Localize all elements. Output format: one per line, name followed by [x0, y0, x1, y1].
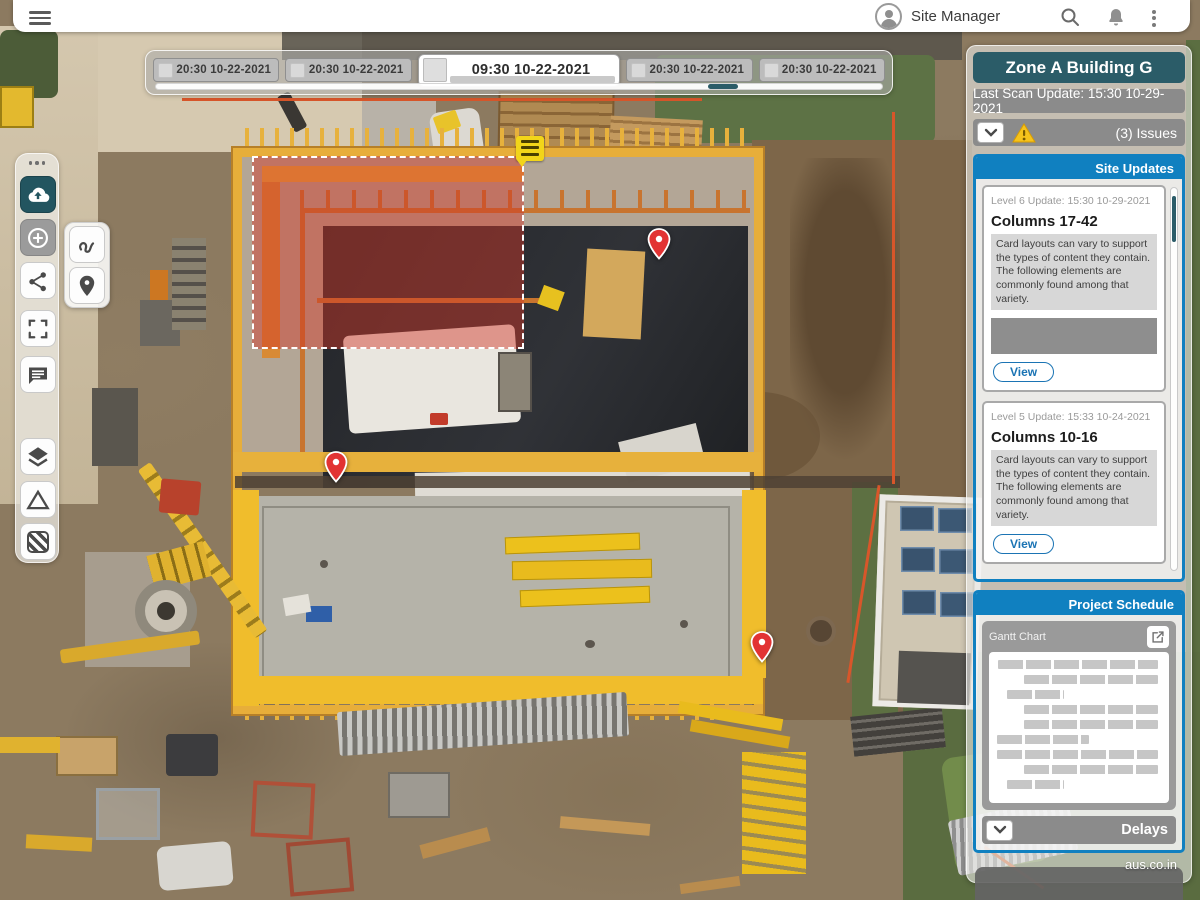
gantt-bar	[1024, 705, 1158, 714]
delays-label: Delays	[1013, 822, 1168, 838]
photo-red-scaffold-2	[286, 837, 354, 896]
gantt-bar	[1024, 675, 1158, 684]
upload-cloud-button[interactable]	[20, 176, 56, 213]
layers-icon	[25, 444, 51, 470]
snapshot-thumbnail	[764, 63, 779, 78]
update-meta: Level 5 Update: 15:33 10-24-2021	[991, 411, 1157, 423]
update-image-placeholder	[991, 318, 1157, 354]
menu-icon[interactable]	[29, 8, 51, 24]
update-title: Columns 10-16	[991, 429, 1157, 446]
triangle-icon	[25, 487, 51, 513]
location-pin-icon	[76, 275, 98, 297]
gantt-bar	[1024, 765, 1158, 774]
user-menu[interactable]: Site Manager	[875, 2, 1000, 30]
photo-beams-v	[742, 752, 806, 874]
photo-dark-bin	[166, 734, 218, 776]
gantt-bar	[998, 660, 1158, 669]
photo-debris-3	[680, 620, 688, 628]
photo-pallet-tan	[56, 736, 118, 776]
photo-red-scaffold-1	[251, 780, 316, 839]
more-options-icon[interactable]	[1150, 7, 1158, 27]
photo-red-machine	[159, 478, 202, 515]
share-button[interactable]	[20, 262, 56, 299]
plus-circle-icon	[25, 225, 51, 251]
update-body-text: Card layouts can vary to support the typ…	[991, 450, 1157, 526]
freehand-draw-icon	[75, 233, 99, 257]
fullscreen-button[interactable]	[20, 310, 56, 347]
site-updates-body: Level 6 Update: 15:30 10-29-2021 Columns…	[976, 179, 1182, 579]
photo-crane-hub	[157, 602, 175, 620]
gantt-bar	[997, 735, 1089, 744]
photo-divider-yellow	[233, 452, 761, 472]
site-updates-panel: Site Updates Level 6 Update: 15:30 10-29…	[973, 154, 1185, 582]
photo-debris-1	[320, 560, 328, 568]
photo-solar-panel-3	[901, 547, 935, 572]
map-pin[interactable]	[324, 451, 348, 483]
timeline-snapshot-button[interactable]: 20:30 10-22-2021	[153, 58, 279, 82]
updates-scrollbar[interactable]	[1170, 187, 1178, 571]
issues-expand-button[interactable]	[977, 122, 1004, 143]
detail-placeholder-box	[975, 867, 1183, 900]
timeline-snapshot-button[interactable]: 20:30 10-22-2021	[285, 58, 411, 82]
photo-red-machine-dot	[430, 413, 448, 425]
gantt-bar	[997, 750, 1158, 759]
timeline-snapshot-button[interactable]: 20:30 10-22-2021	[759, 58, 885, 82]
update-body-text: Card layouts can vary to support the typ…	[991, 234, 1157, 310]
photo-boundary-line-top	[182, 98, 702, 101]
upload-cloud-icon	[25, 182, 51, 208]
photo-stack-striped	[172, 238, 206, 330]
photo-dark-stack-1	[92, 388, 138, 466]
note-marker-icon[interactable]	[516, 136, 544, 161]
last-scan-update: Last Scan Update: 15:30 10-29-2021	[973, 89, 1185, 113]
gantt-bar	[1024, 720, 1158, 729]
view-button[interactable]: View	[993, 362, 1054, 382]
search-icon[interactable]	[1060, 7, 1080, 27]
snapshot-thumbnail	[290, 63, 305, 78]
gantt-chart-label: Gantt Chart	[989, 631, 1046, 643]
app-root: Site Manager 20:30 10-22-2021 20:30 10-2…	[0, 0, 1200, 900]
layers-button[interactable]	[20, 438, 56, 475]
photo-manhole	[806, 616, 836, 646]
project-schedule-body: Gantt Chart Delays	[976, 615, 1182, 850]
timeline-snapshot-button-selected[interactable]: 09:30 10-22-2021	[418, 54, 620, 87]
snapshot-timeline: 20:30 10-22-2021 20:30 10-22-2021 09:30 …	[145, 50, 893, 95]
photo-slab-frame	[262, 506, 730, 684]
annotation-flyout	[64, 222, 110, 308]
photo-solar-panel-5	[902, 590, 936, 615]
chevron-down-icon	[993, 825, 1007, 835]
photo-yellow-band-bottom	[233, 676, 763, 704]
warning-icon	[1012, 123, 1036, 143]
view-button[interactable]: View	[993, 534, 1054, 554]
gantt-bar	[1007, 690, 1064, 699]
drop-pin-button[interactable]	[69, 267, 105, 304]
delays-bar: Delays	[982, 816, 1176, 844]
project-schedule-header: Project Schedule	[976, 593, 1182, 615]
top-bar: Site Manager	[13, 0, 1190, 32]
photo-white-bundle	[156, 841, 234, 891]
share-icon	[26, 269, 50, 293]
map-toolbar	[15, 153, 59, 563]
photo-solar-panel-1	[900, 506, 934, 531]
gantt-card: Gantt Chart	[982, 621, 1176, 810]
snapshot-progress	[450, 76, 615, 83]
zone-title: Zone A Building G	[973, 52, 1185, 83]
project-schedule-panel: Project Schedule Gantt Chart Delays	[973, 590, 1185, 853]
photo-gray-pallet	[388, 772, 450, 818]
photo-solar-base	[897, 651, 971, 705]
external-link-icon	[1151, 630, 1165, 644]
timeline-snapshot-button[interactable]: 20:30 10-22-2021	[626, 58, 752, 82]
snapshot-thumbnail	[423, 58, 447, 82]
updates-scrollbar-thumb[interactable]	[1172, 196, 1176, 242]
snapshot-thumbnail	[158, 63, 173, 78]
gantt-bar	[1007, 780, 1064, 789]
delays-expand-button[interactable]	[986, 820, 1013, 841]
issues-count-label: (3) Issues	[1044, 125, 1177, 141]
notifications-bell-icon[interactable]	[1106, 7, 1126, 27]
update-card: Level 5 Update: 15:33 10-24-2021 Columns…	[982, 401, 1166, 564]
add-annotation-button[interactable]	[20, 219, 56, 256]
photo-yellow-plank-bl1	[0, 737, 60, 753]
map-pin[interactable]	[647, 228, 671, 260]
update-meta: Level 6 Update: 15:30 10-29-2021	[991, 195, 1157, 207]
photo-machine-center	[498, 352, 532, 412]
photo-plywood	[583, 249, 646, 340]
draw-freehand-button[interactable]	[69, 226, 105, 263]
site-updates-header: Site Updates	[976, 157, 1182, 179]
comment-button[interactable]	[20, 356, 56, 393]
user-label: Site Manager	[911, 8, 1000, 25]
zone-sidebar: Zone A Building G Last Scan Update: 15:3…	[966, 45, 1192, 883]
update-card: Level 6 Update: 15:30 10-29-2021 Columns…	[982, 185, 1166, 392]
hatch-icon	[27, 531, 49, 553]
fullscreen-icon	[26, 317, 50, 341]
watermark-label: aus.co.in	[1125, 857, 1177, 872]
gantt-rows	[989, 652, 1169, 803]
update-title: Columns 17-42	[991, 213, 1157, 230]
toolbar-drag-handle[interactable]	[16, 161, 58, 169]
snapshot-thumbnail	[631, 63, 646, 78]
timeline-scrollbar[interactable]	[155, 83, 883, 90]
avatar	[875, 3, 902, 30]
photo-metal-grid	[96, 788, 160, 840]
selected-region-overlay[interactable]	[252, 156, 524, 349]
hatch-fill-button[interactable]	[20, 523, 56, 560]
photo-debris-2	[585, 640, 595, 648]
photo-slab-plank-2	[512, 559, 652, 580]
comment-icon	[26, 363, 50, 387]
chevron-down-icon	[984, 128, 998, 138]
issues-bar: (3) Issues	[973, 119, 1185, 146]
timeline-scrollbar-thumb[interactable]	[708, 84, 738, 89]
map-pin[interactable]	[750, 631, 774, 663]
photo-site-ticks-top	[245, 128, 750, 150]
photo-yellow-sign	[0, 86, 34, 128]
photo-boundary-line-right	[892, 112, 895, 484]
open-gantt-button[interactable]	[1147, 626, 1169, 648]
measure-triangle-button[interactable]	[20, 481, 56, 518]
photo-orange-bit	[150, 270, 168, 300]
